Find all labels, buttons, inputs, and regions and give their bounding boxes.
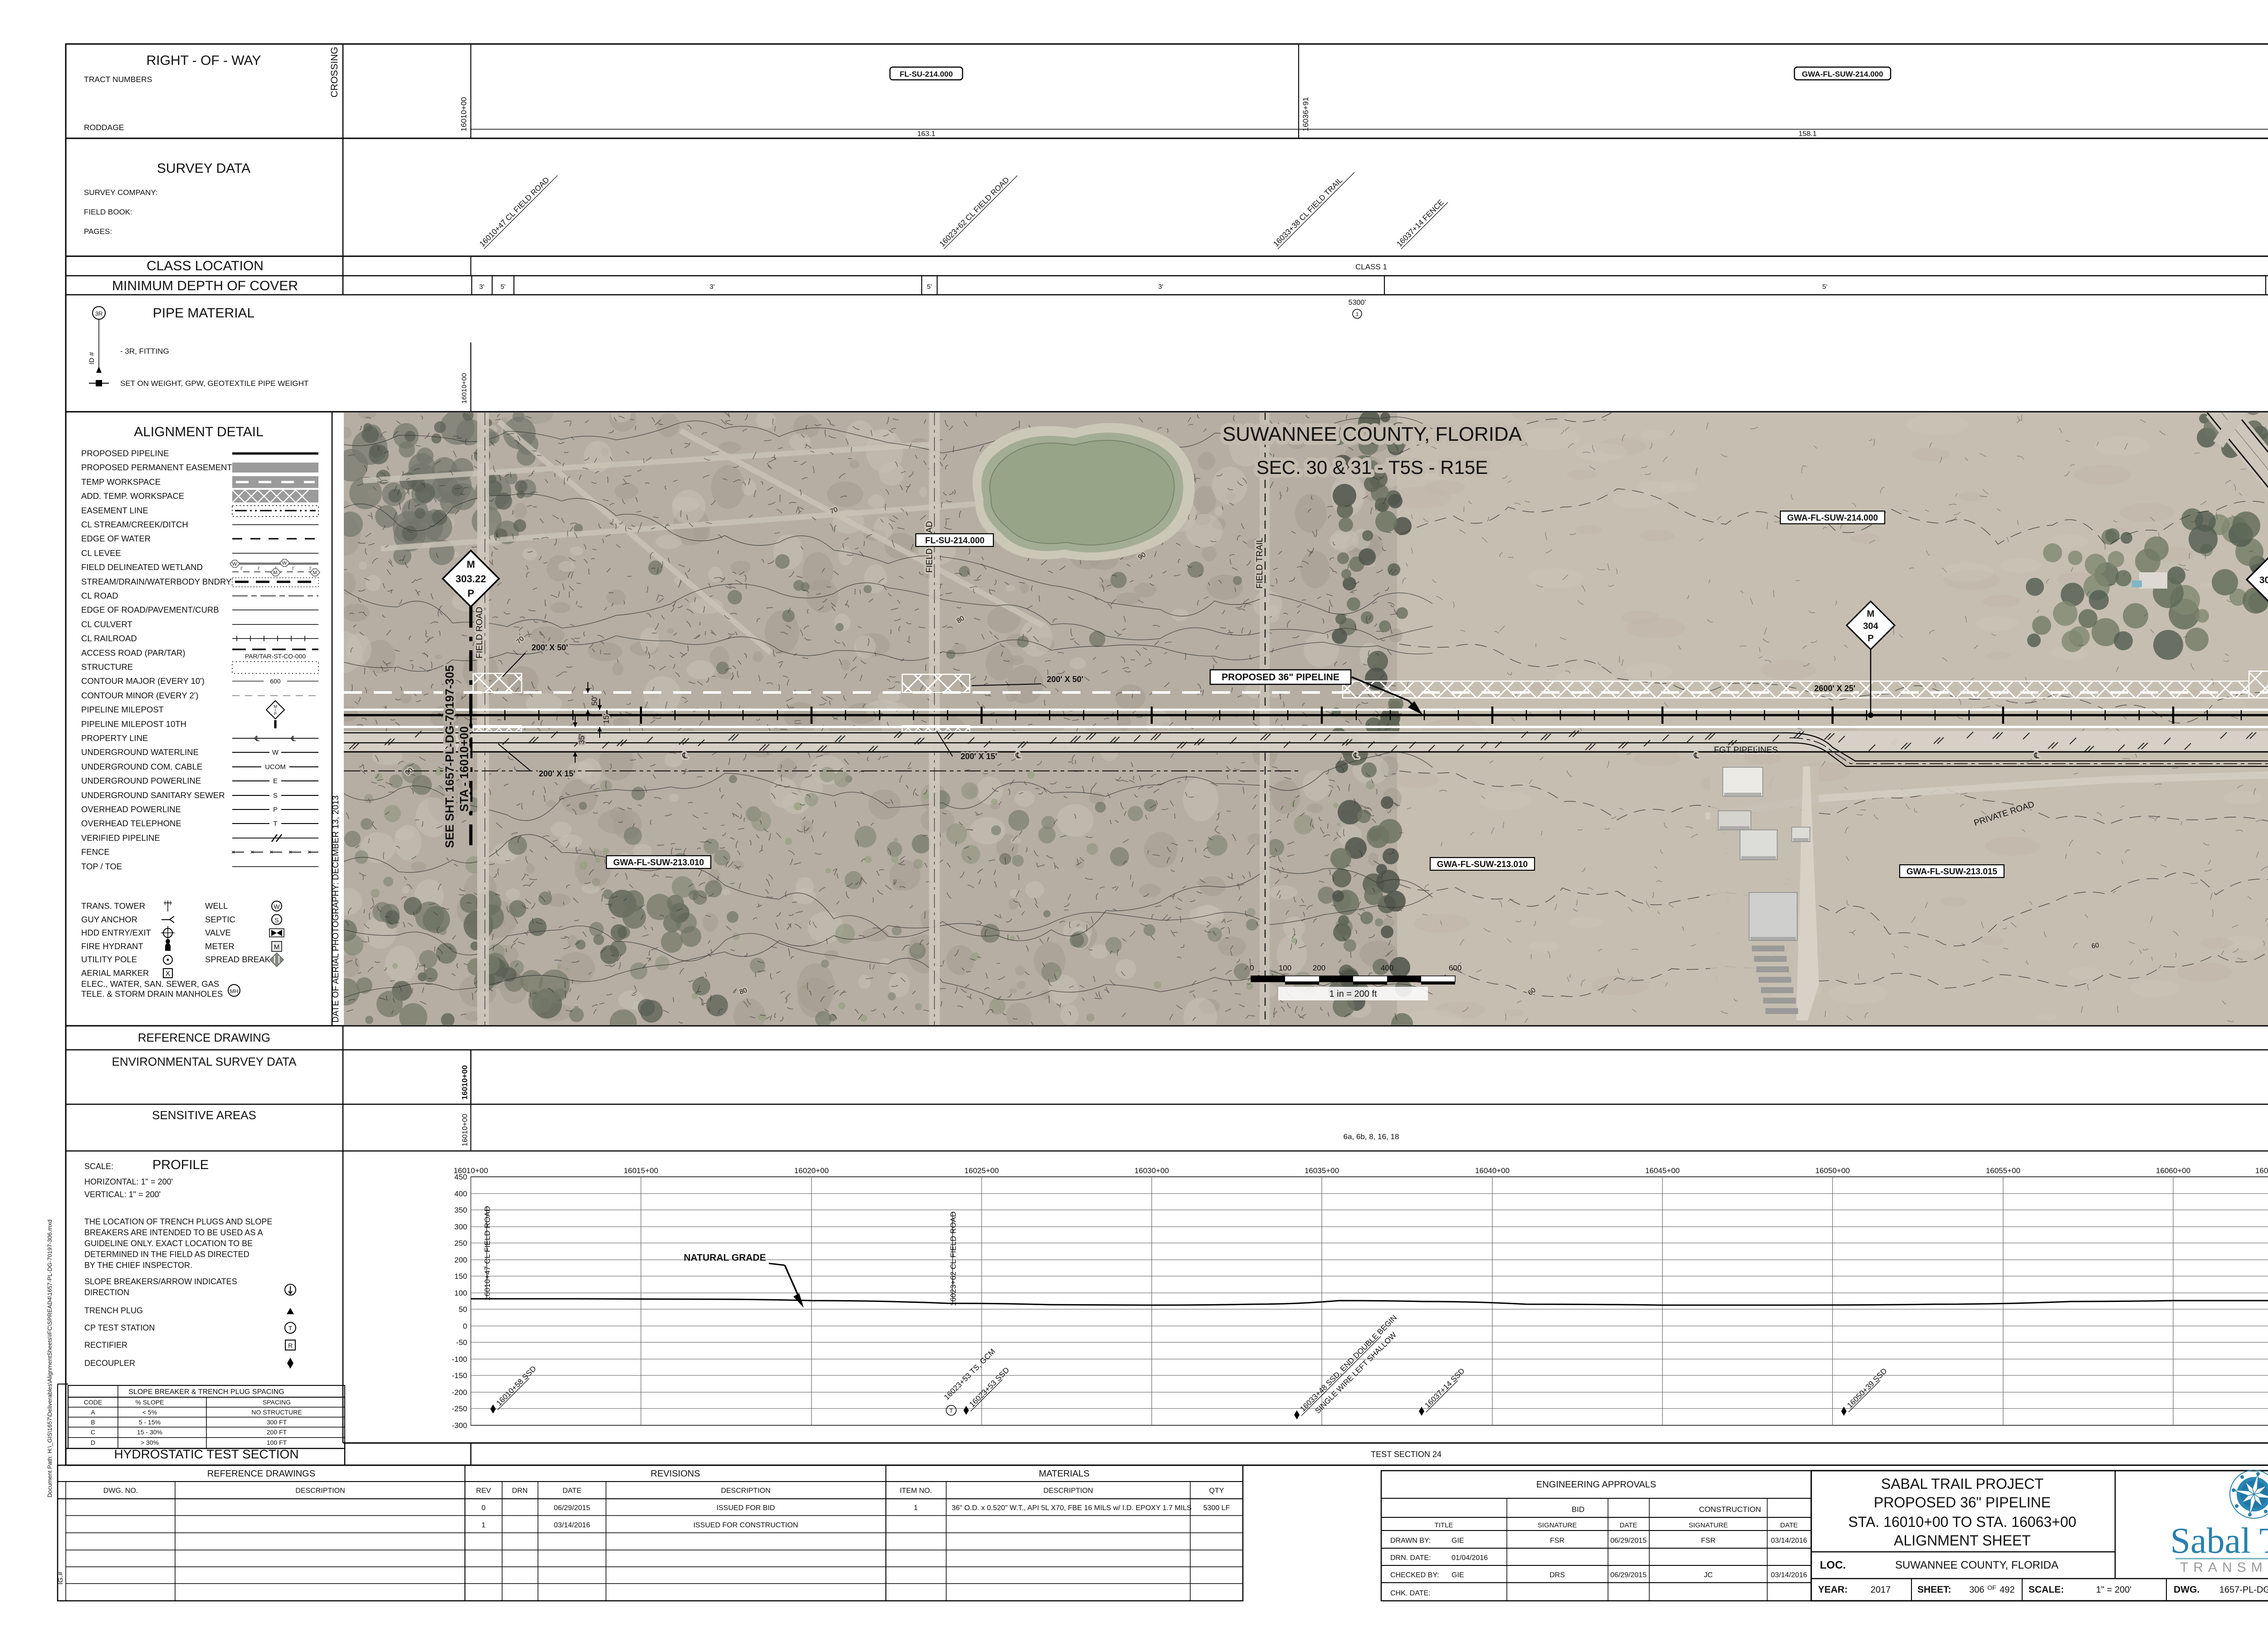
svg-text:5300 LF: 5300 LF (1203, 1504, 1230, 1512)
svg-text:GWA-FL-SUW-213.010: GWA-FL-SUW-213.010 (613, 858, 704, 868)
svg-text:THE LOCATION OF TRENCH PLUGS A: THE LOCATION OF TRENCH PLUGS AND SLOPE (84, 1217, 272, 1226)
svg-text:16050+00: 16050+00 (1815, 1166, 1850, 1175)
svg-text:℄: ℄ (254, 735, 260, 743)
svg-text:16023+62 CL FIELD ROAD: 16023+62 CL FIELD ROAD (949, 1211, 958, 1306)
svg-text:EDGE OF WATER: EDGE OF WATER (81, 534, 151, 543)
svg-text:06/29/2015: 06/29/2015 (1610, 1537, 1647, 1545)
svg-text:SCALE:: SCALE: (84, 1162, 113, 1171)
svg-text:SENSITIVE AREAS: SENSITIVE AREAS (152, 1108, 256, 1122)
svg-text:CP TEST STATION: CP TEST STATION (84, 1323, 155, 1332)
svg-text:3': 3' (479, 283, 484, 291)
svg-text:STA - 16010+00: STA - 16010+00 (457, 726, 471, 812)
svg-text:ELEC., WATER, SAN. SEWER, GAS: ELEC., WATER, SAN. SEWER, GAS (81, 979, 219, 989)
svg-text:158.1: 158.1 (1799, 130, 1817, 138)
svg-text:100: 100 (1279, 964, 1291, 972)
svg-text:I’: I’ (292, 566, 295, 571)
svg-text:1657-PL-DG-70197-306: 1657-PL-DG-70197-306 (2219, 1585, 2268, 1595)
svg-text:-50: -50 (456, 1338, 467, 1347)
svg-text:PROPOSED PIPELINE: PROPOSED PIPELINE (81, 448, 169, 458)
svg-text:16010+00: 16010+00 (454, 1166, 488, 1175)
svg-text:0: 0 (463, 1322, 467, 1331)
svg-text:DECOUPLER: DECOUPLER (84, 1359, 135, 1368)
svg-text:-250: -250 (452, 1404, 467, 1413)
svg-text:SPACING: SPACING (263, 1399, 291, 1406)
svg-text:-200: -200 (452, 1388, 467, 1397)
svg-text:PROPOSED 36" PIPELINE: PROPOSED 36" PIPELINE (1222, 672, 1339, 682)
svg-text:REVISIONS: REVISIONS (651, 1469, 700, 1479)
svg-text:R: R (288, 1342, 293, 1349)
svg-text:03/14/2016: 03/14/2016 (1771, 1537, 1807, 1545)
svg-text:JC: JC (1704, 1571, 1713, 1579)
svg-text:PIPELINE MILEPOST 10TH: PIPELINE MILEPOST 10TH (81, 719, 186, 729)
svg-text:STA. 16010+00 TO STA. 16063+00: STA. 16010+00 TO STA. 16063+00 (1848, 1514, 2077, 1530)
svg-text:X: X (166, 970, 171, 978)
svg-text:UNDERGROUND SANITARY SEWER: UNDERGROUND SANITARY SEWER (81, 790, 225, 800)
svg-text:CODE: CODE (84, 1399, 102, 1406)
svg-text:DATE: DATE (562, 1487, 581, 1495)
svg-text:CONSTRUCTION: CONSTRUCTION (1699, 1505, 1761, 1514)
svg-text:DATE OF AERIAL PHOTOGRAPHY: DE: DATE OF AERIAL PHOTOGRAPHY: DECEMBER 13,… (331, 795, 341, 1023)
svg-text:UNDERGROUND POWERLINE: UNDERGROUND POWERLINE (81, 776, 201, 785)
svg-text:16035+00: 16035+00 (1305, 1166, 1339, 1175)
svg-text:METER: METER (205, 941, 235, 951)
svg-text:1: 1 (914, 1504, 918, 1512)
svg-text:C: C (91, 1428, 95, 1436)
svg-text:M: M (467, 559, 475, 570)
svg-text:03/14/2016: 03/14/2016 (554, 1521, 590, 1529)
svg-text:1 in = 200 ft: 1 in = 200 ft (1329, 989, 1377, 999)
svg-text:REFERENCE DRAWINGS: REFERENCE DRAWINGS (207, 1469, 315, 1479)
svg-text:ITEM NO.: ITEM NO. (899, 1487, 932, 1495)
svg-text:UCOM: UCOM (265, 763, 286, 771)
svg-text:RODDAGE: RODDAGE (84, 123, 124, 132)
svg-text:200: 200 (455, 1256, 467, 1264)
svg-text:UTILITY POLE: UTILITY POLE (81, 955, 137, 964)
svg-text:TRANSMISSION: TRANSMISSION (2180, 1560, 2268, 1575)
svg-text:16020+00: 16020+00 (794, 1166, 829, 1175)
svg-text:×: × (250, 848, 254, 856)
svg-text:REV: REV (476, 1487, 491, 1495)
svg-text:×: × (231, 848, 235, 856)
svg-text:HYDROSTATIC TEST SECTION: HYDROSTATIC TEST SECTION (114, 1447, 298, 1461)
svg-text:06/29/2015: 06/29/2015 (1610, 1571, 1647, 1579)
svg-text:×: × (288, 848, 293, 856)
svg-text:5': 5' (500, 283, 505, 291)
svg-text:×: × (308, 848, 312, 856)
svg-text:CROSSING: CROSSING (329, 47, 340, 97)
svg-text:100 FT: 100 FT (267, 1439, 287, 1446)
svg-text:FSR: FSR (1550, 1537, 1564, 1545)
svg-text:16055+00: 16055+00 (1986, 1166, 2020, 1175)
svg-text:P: P (1867, 634, 1873, 643)
svg-text:306: 306 (1969, 1585, 1984, 1595)
svg-text:600: 600 (270, 678, 281, 685)
svg-text:FIELD DELINEATED WETLAND: FIELD DELINEATED WETLAND (81, 562, 203, 572)
svg-text:ENVIRONMENTAL SURVEY DATA: ENVIRONMENTAL SURVEY DATA (112, 1055, 297, 1068)
svg-text:1" = 200': 1" = 200' (2096, 1585, 2131, 1595)
svg-text:35': 35' (577, 734, 586, 744)
svg-text:-150: -150 (452, 1371, 467, 1380)
svg-text:0: 0 (1250, 964, 1254, 972)
svg-text:TELE. & STORM DRAIN MANHOLES: TELE. & STORM DRAIN MANHOLES (81, 989, 223, 999)
svg-text:GIE: GIE (1452, 1537, 1464, 1545)
svg-text:DRN. DATE:: DRN. DATE: (1390, 1554, 1431, 1562)
svg-text:16010+00: 16010+00 (460, 1065, 469, 1100)
svg-text:TEMP WORKSPACE: TEMP WORKSPACE (81, 477, 161, 487)
svg-text:I’: I’ (240, 566, 243, 571)
svg-text:FL-SU-214.000: FL-SU-214.000 (899, 70, 953, 78)
svg-text:M: M (274, 943, 280, 951)
svg-text:100: 100 (455, 1289, 467, 1297)
svg-text:GIE: GIE (1452, 1571, 1464, 1579)
svg-text:15 - 30%: 15 - 30% (137, 1428, 162, 1436)
svg-text:ALIGNMENT SHEET: ALIGNMENT SHEET (1894, 1532, 2031, 1549)
svg-text:P: P (468, 588, 474, 599)
svg-text:W: W (232, 561, 237, 567)
svg-text:50: 50 (459, 1305, 467, 1314)
svg-text:400: 400 (455, 1189, 467, 1198)
svg-text:BY THE CHIEF INSPECTOR.: BY THE CHIEF INSPECTOR. (84, 1261, 192, 1270)
svg-text:SUWANNEE COUNTY, FLORIDA: SUWANNEE COUNTY, FLORIDA (1222, 423, 1522, 445)
svg-text:5300': 5300' (1349, 299, 1366, 307)
svg-text:PROPERTY LINE: PROPERTY LINE (81, 733, 148, 743)
svg-text:M: M (313, 570, 317, 575)
svg-text:SHEET:: SHEET: (1917, 1584, 1951, 1595)
svg-text:W: W (274, 903, 280, 910)
svg-text:EASEMENT LINE: EASEMENT LINE (81, 506, 148, 515)
svg-text:TITLE: TITLE (1435, 1521, 1453, 1529)
svg-text:16060+00: 16060+00 (2156, 1166, 2190, 1175)
svg-text:T: T (949, 1408, 953, 1414)
svg-text:PIPE MATERIAL: PIPE MATERIAL (153, 306, 255, 321)
svg-text:BREAKERS ARE INTENDED TO BE US: BREAKERS ARE INTENDED TO BE USED AS A (84, 1228, 263, 1237)
svg-text:DESCRIPTION: DESCRIPTION (721, 1487, 770, 1495)
svg-text:VERIFIED PIPELINE: VERIFIED PIPELINE (81, 833, 160, 843)
svg-text:Document Path: H:\_GIS\1657\De: Document Path: H:\_GIS\1657\Deliverables… (46, 1219, 53, 1497)
svg-text:℄: ℄ (682, 751, 688, 760)
svg-text:NO STRUCTURE: NO STRUCTURE (251, 1409, 302, 1416)
svg-text:T: T (288, 1325, 293, 1332)
svg-text:SCALE:: SCALE: (2028, 1584, 2064, 1595)
svg-text:℄: ℄ (1693, 751, 1699, 760)
svg-text:250: 250 (455, 1239, 467, 1248)
svg-text:6a, 6b, 8, 16, 18: 6a, 6b, 8, 16, 18 (1344, 1132, 1399, 1141)
svg-text:DRAWN BY:: DRAWN BY: (1390, 1537, 1431, 1545)
svg-text:SABAL TRAIL PROJECT: SABAL TRAIL PROJECT (1881, 1476, 2043, 1492)
svg-text:GWA-FL-SUW-213.015: GWA-FL-SUW-213.015 (1906, 867, 1998, 877)
svg-text:-100: -100 (452, 1355, 467, 1364)
svg-text:℄: ℄ (291, 735, 296, 743)
svg-text:PROFILE: PROFILE (152, 1158, 209, 1172)
svg-text:CHECKED BY:: CHECKED BY: (1390, 1571, 1439, 1579)
svg-text:% SLOPE: % SLOPE (135, 1399, 164, 1406)
svg-text:350: 350 (455, 1206, 467, 1214)
svg-text:DESCRIPTION: DESCRIPTION (1043, 1487, 1093, 1495)
svg-text:P: P (273, 806, 278, 814)
svg-text:200' X 15': 200' X 15' (539, 769, 576, 778)
svg-text:60: 60 (2091, 941, 2099, 951)
svg-text:FIELD TRAIL: FIELD TRAIL (1255, 537, 1265, 589)
svg-text:16045+00: 16045+00 (1645, 1166, 1680, 1175)
svg-text:HDD ENTRY/EXIT: HDD ENTRY/EXIT (81, 928, 151, 937)
svg-text:EDGE OF ROAD/PAVEMENT/CURB: EDGE OF ROAD/PAVEMENT/CURB (81, 605, 219, 614)
svg-text:1: 1 (1356, 311, 1359, 317)
svg-text:DATE: DATE (1780, 1521, 1798, 1529)
svg-text:SUWANNEE COUNTY, FLORIDA: SUWANNEE COUNTY, FLORIDA (1895, 1559, 2058, 1571)
svg-text:DETERMINED IN THE FIELD AS DIR: DETERMINED IN THE FIELD AS DIRECTED (84, 1250, 249, 1259)
svg-text:PAGES:: PAGES: (84, 227, 112, 236)
svg-text:B: B (91, 1419, 95, 1426)
svg-text:FSR: FSR (1701, 1537, 1716, 1545)
svg-text:P: P (274, 712, 277, 716)
svg-text:SEE SHT. 1657-PL-DG-70197-305: SEE SHT. 1657-PL-DG-70197-305 (443, 665, 456, 848)
svg-text:ENGINEERING APPROVALS: ENGINEERING APPROVALS (1536, 1480, 1656, 1490)
svg-text:SURVEY COMPANY:: SURVEY COMPANY: (84, 188, 158, 197)
svg-text:5': 5' (927, 283, 932, 291)
svg-text:ALIGNMENT DETAIL: ALIGNMENT DETAIL (134, 424, 264, 439)
svg-text:℄: ℄ (2033, 751, 2039, 760)
svg-text:PIPELINE MILEPOST: PIPELINE MILEPOST (81, 705, 164, 714)
svg-text:BID: BID (1572, 1505, 1584, 1514)
svg-text:STRUCTURE: STRUCTURE (81, 662, 133, 672)
svg-text:TEST SECTION 24: TEST SECTION 24 (1371, 1450, 1442, 1459)
svg-text:16010+00: 16010+00 (460, 373, 468, 404)
svg-text:ISSUED FOR BID: ISSUED FOR BID (717, 1504, 775, 1512)
svg-text:200' X 15': 200' X 15' (961, 752, 997, 761)
svg-text:SIGNATURE: SIGNATURE (1689, 1521, 1728, 1529)
svg-text:CLASS 1: CLASS 1 (1355, 263, 1387, 271)
svg-text:3': 3' (709, 283, 714, 291)
svg-text:UNDERGROUND COM. CABLE: UNDERGROUND COM. CABLE (81, 762, 202, 771)
svg-text:16063+00: 16063+00 (2255, 1166, 2268, 1175)
svg-text:MATERIALS: MATERIALS (1039, 1469, 1090, 1479)
svg-text:16015+00: 16015+00 (624, 1166, 658, 1175)
svg-text:OVERHEAD TELEPHONE: OVERHEAD TELEPHONE (81, 819, 181, 828)
svg-text:℄: ℄ (1353, 751, 1359, 760)
svg-text:600: 600 (1449, 964, 1461, 972)
svg-text:0: 0 (482, 1504, 486, 1512)
svg-text:HORIZONTAL: 1" = 200': HORIZONTAL: 1" = 200' (84, 1177, 173, 1186)
svg-text:GWA-FL-SUW-214.000: GWA-FL-SUW-214.000 (1802, 70, 1883, 78)
svg-text:LOC.: LOC. (1820, 1559, 1846, 1571)
svg-text:36" O.D. x 0.520" W.T., API 5L: 36" O.D. x 0.520" W.T., API 5L X70, FBE … (952, 1504, 1192, 1512)
svg-text:200 FT: 200 FT (267, 1428, 287, 1436)
svg-text:CL CULVERT: CL CULVERT (81, 619, 132, 629)
svg-text:℄: ℄ (1015, 751, 1021, 760)
svg-text:×: × (269, 848, 274, 856)
svg-text:16010+00: 16010+00 (459, 97, 468, 132)
svg-text:DESCRIPTION: DESCRIPTION (295, 1487, 345, 1495)
svg-text:5': 5' (1822, 283, 1827, 291)
svg-text:Sabal Trail: Sabal Trail (2170, 1521, 2268, 1561)
svg-text:FL-SU-214.000: FL-SU-214.000 (925, 536, 985, 546)
svg-text:DATE: DATE (1620, 1521, 1637, 1529)
svg-text:M: M (273, 570, 277, 575)
svg-text:A: A (91, 1409, 95, 1416)
svg-text:16036+91: 16036+91 (1301, 97, 1310, 132)
svg-text:300 FT: 300 FT (267, 1419, 287, 1426)
svg-text:REFERENCE DRAWING: REFERENCE DRAWING (138, 1031, 270, 1044)
svg-text:PROPOSED 36" PIPELINE: PROPOSED 36" PIPELINE (1874, 1494, 2051, 1511)
svg-text:CL LEVEE: CL LEVEE (81, 548, 121, 558)
svg-text:ACCESS ROAD (PAR/TAR): ACCESS ROAD (PAR/TAR) (81, 648, 186, 658)
svg-text:SET ON WEIGHT, GPW, GEOTEXTILE: SET ON WEIGHT, GPW, GEOTEXTILE PIPE WEIG… (120, 379, 308, 388)
svg-text:T: T (273, 820, 277, 828)
svg-text:- 3R, FITTING: - 3R, FITTING (120, 347, 169, 356)
svg-text:ADD. TEMP. WORKSPACE: ADD. TEMP. WORKSPACE (81, 491, 184, 501)
svg-text:SEPTIC: SEPTIC (205, 915, 235, 924)
svg-text:CONTOUR MINOR (EVERY 2'): CONTOUR MINOR (EVERY 2') (81, 691, 198, 700)
svg-text:SEC. 30 & 31 - T5S - R15E: SEC. 30 & 31 - T5S - R15E (1256, 457, 1488, 478)
svg-text:DIRECTION: DIRECTION (84, 1288, 129, 1297)
svg-text:VALVE: VALVE (205, 928, 231, 937)
svg-text:16030+00: 16030+00 (1134, 1166, 1169, 1175)
svg-text:TOP / TOE: TOP / TOE (81, 862, 122, 871)
svg-text:FIELD ROAD: FIELD ROAD (475, 607, 484, 658)
svg-text:FGT PIPELINES: FGT PIPELINES (1714, 746, 1778, 755)
svg-text:S: S (274, 916, 279, 924)
svg-text:WELL: WELL (205, 901, 228, 911)
svg-text:5 - 15%: 5 - 15% (139, 1419, 161, 1426)
svg-text:16010+47 CL FIELD ROAD: 16010+47 CL FIELD ROAD (483, 1206, 492, 1301)
svg-text:CL ROAD: CL ROAD (81, 591, 118, 600)
svg-text:W: W (282, 561, 287, 566)
svg-text:FIRE HYDRANT: FIRE HYDRANT (81, 941, 143, 951)
svg-text:200' X 50': 200' X 50' (1047, 675, 1084, 684)
svg-text:DWG. NO.: DWG. NO. (103, 1487, 138, 1495)
svg-text:492: 492 (1999, 1585, 2014, 1595)
svg-text:-300: -300 (452, 1421, 467, 1430)
svg-text:CL RAILROAD: CL RAILROAD (81, 634, 137, 643)
svg-text:E: E (273, 777, 278, 785)
svg-text:06/29/2015: 06/29/2015 (554, 1504, 590, 1512)
svg-text:MH: MH (230, 988, 239, 994)
svg-text:AERIAL MARKER: AERIAL MARKER (81, 968, 149, 978)
svg-text:QTY: QTY (1209, 1487, 1224, 1495)
svg-text:ID #: ID # (88, 352, 96, 365)
svg-text:300: 300 (455, 1223, 467, 1231)
svg-text:OF: OF (1987, 1584, 1996, 1591)
svg-text:D: D (91, 1439, 95, 1446)
svg-text:TRACT NUMBERS: TRACT NUMBERS (84, 75, 152, 84)
svg-text:SLOPE BREAKERS/ARROW INDICATES: SLOPE BREAKERS/ARROW INDICATES (84, 1277, 237, 1286)
svg-text:304: 304 (1863, 621, 1878, 631)
svg-text:GWA-FL-SUW-214.000: GWA-FL-SUW-214.000 (1787, 513, 1878, 523)
svg-text:DRS: DRS (1549, 1571, 1565, 1579)
svg-text:DRN: DRN (512, 1487, 528, 1495)
svg-text:163.1: 163.1 (917, 130, 935, 138)
svg-text:CL STREAM/CREEK/DITCH: CL STREAM/CREEK/DITCH (81, 520, 188, 529)
svg-text:400: 400 (1381, 964, 1393, 972)
svg-text:MINIMUM DEPTH OF COVER: MINIMUM DEPTH OF COVER (112, 278, 298, 293)
svg-text:01/04/2016: 01/04/2016 (1452, 1554, 1488, 1562)
svg-text:16040+00: 16040+00 (1475, 1166, 1510, 1175)
svg-text:03/14/2016: 03/14/2016 (1771, 1571, 1807, 1579)
svg-text:SLOPE BREAKER & TRENCH PLUG SP: SLOPE BREAKER & TRENCH PLUG SPACING (128, 1388, 284, 1396)
svg-text:ISSUED FOR CONSTRUCTION: ISSUED FOR CONSTRUCTION (693, 1521, 798, 1529)
svg-text:PAR/TAR-ST-CO-000: PAR/TAR-ST-CO-000 (245, 653, 306, 660)
svg-text:SURVEY DATA: SURVEY DATA (157, 161, 250, 176)
svg-text:304.22: 304.22 (2259, 575, 2268, 585)
svg-text:TRANS. TOWER: TRANS. TOWER (81, 901, 145, 911)
svg-text:200: 200 (1313, 964, 1325, 972)
svg-text:2600' X 25': 2600' X 25' (1814, 684, 1856, 693)
svg-text:3R: 3R (95, 310, 103, 317)
svg-text:3': 3' (1158, 283, 1163, 291)
svg-text:303.22: 303.22 (455, 573, 486, 585)
svg-text:GUY ANCHOR: GUY ANCHOR (81, 915, 137, 924)
svg-text:W: W (272, 749, 279, 756)
svg-text:< 5%: < 5% (142, 1409, 157, 1416)
svg-text:PROPOSED PERMANENT EASEMENT: PROPOSED PERMANENT EASEMENT (81, 463, 232, 472)
svg-text:16010+00: 16010+00 (461, 1114, 469, 1146)
svg-text:DWG.: DWG. (2174, 1584, 2200, 1595)
svg-text:FENCE: FENCE (81, 847, 110, 857)
svg-text:16025+00: 16025+00 (964, 1166, 999, 1175)
svg-text:CONTOUR MAJOR (EVERY 10'): CONTOUR MAJOR (EVERY 10') (81, 676, 205, 686)
svg-text:2017: 2017 (1871, 1585, 1891, 1595)
svg-text:UNDERGROUND WATERLINE: UNDERGROUND WATERLINE (81, 747, 199, 757)
svg-text:OVERHEAD POWERLINE: OVERHEAD POWERLINE (81, 804, 181, 814)
svg-text:SPREAD BREAK: SPREAD BREAK (205, 955, 271, 964)
svg-text:I’: I’ (258, 566, 260, 571)
svg-text:GWA-FL-SUW-213.010: GWA-FL-SUW-213.010 (1437, 860, 1528, 869)
svg-text:RECTIFIER: RECTIFIER (84, 1341, 127, 1350)
svg-text:15': 15' (602, 714, 611, 724)
svg-text:50': 50' (590, 696, 599, 706)
svg-text:TRENCH PLUG: TRENCH PLUG (84, 1306, 143, 1315)
svg-text:CHK. DATE:: CHK. DATE: (1390, 1589, 1431, 1597)
svg-text:200' X 50': 200' X 50' (532, 643, 568, 652)
svg-text:SIGNATURE: SIGNATURE (1538, 1521, 1577, 1529)
svg-text:FIELD BOOK:: FIELD BOOK: (84, 208, 132, 216)
svg-text:CLASS LOCATION: CLASS LOCATION (147, 258, 264, 273)
svg-text:M: M (1867, 609, 1875, 619)
svg-text:STREAM/DRAIN/WATERBODY BNDRY: STREAM/DRAIN/WATERBODY BNDRY (81, 577, 231, 586)
svg-text:NATURAL GRADE: NATURAL GRADE (684, 1253, 766, 1263)
svg-text:YEAR:: YEAR: (1818, 1584, 1848, 1595)
svg-text:1: 1 (482, 1521, 486, 1529)
svg-text:> 30%: > 30% (141, 1439, 159, 1446)
svg-text:VERTICAL: 1" = 200': VERTICAL: 1" = 200' (84, 1190, 161, 1199)
svg-text:RIGHT - OF - WAY: RIGHT - OF - WAY (147, 53, 261, 68)
svg-text:GUIDELINE ONLY. EXACT LOCATIO: GUIDELINE ONLY. EXACT LOCATION TO BE (84, 1239, 253, 1248)
svg-text:150: 150 (455, 1272, 467, 1281)
svg-text:S: S (273, 792, 278, 799)
